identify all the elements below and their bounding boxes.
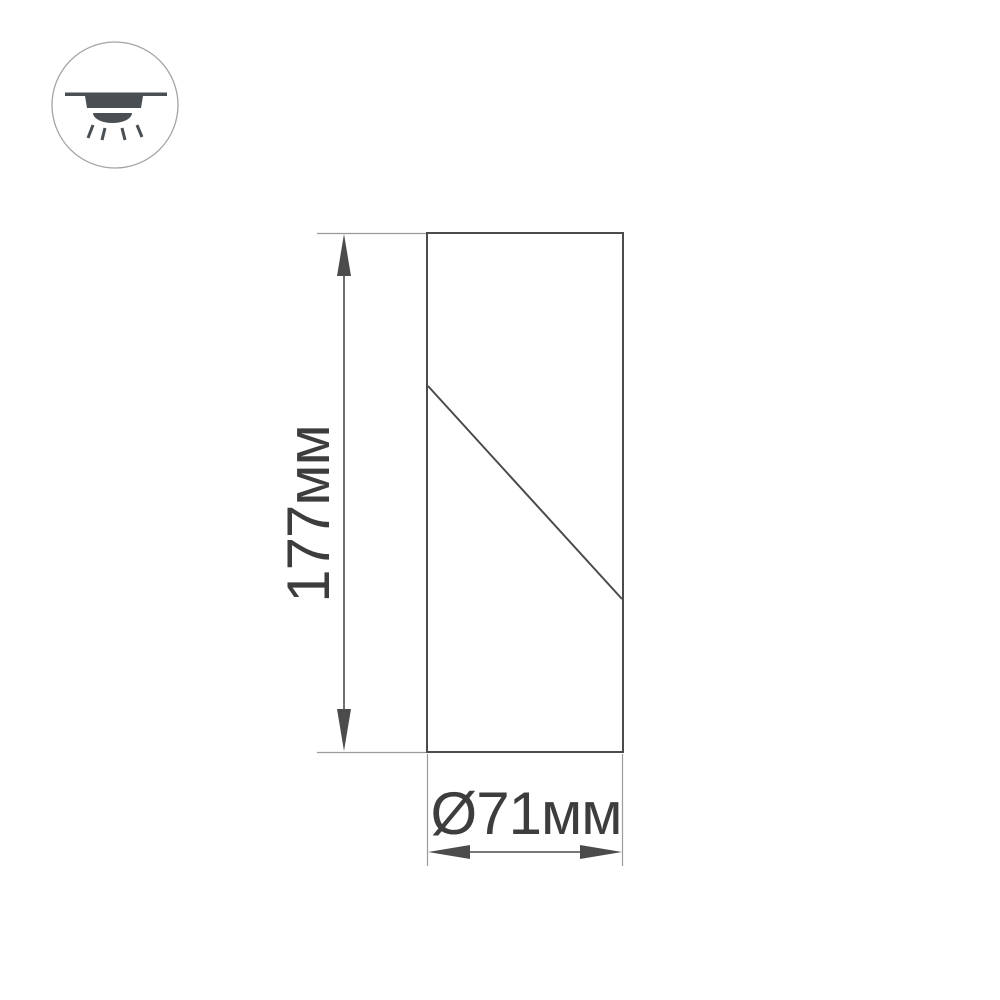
diameter-dimension-label: Ø71мм: [431, 784, 622, 844]
arrow-left-icon: [428, 845, 470, 859]
diameter-dimension: [428, 845, 622, 859]
dimension-drawing: [0, 0, 1000, 1000]
height-dimension-label: 177мм: [279, 425, 339, 603]
arrow-up-icon: [337, 234, 351, 276]
lamp-body-outline: [427, 233, 623, 752]
technical-drawing-canvas: 177мм Ø71мм: [0, 0, 1000, 1000]
arrow-down-icon: [337, 709, 351, 751]
diagonal-cut-line: [428, 386, 622, 599]
arrow-right-icon: [580, 845, 622, 859]
